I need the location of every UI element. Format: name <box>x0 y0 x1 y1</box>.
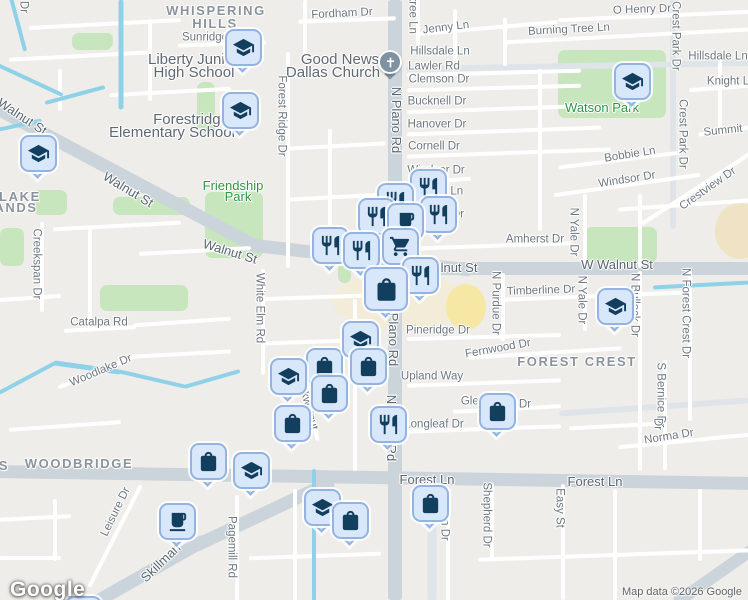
restaurant-icon <box>365 205 388 228</box>
restaurant-icon <box>427 203 450 226</box>
bag-marker[interactable] <box>364 267 408 321</box>
restaurant-icon <box>409 264 432 287</box>
school-icon <box>27 142 50 165</box>
restaurant-icon <box>319 234 342 257</box>
cafe-icon <box>166 510 189 533</box>
bag-marker-body <box>190 443 227 480</box>
cart-icon <box>389 235 412 258</box>
school-marker[interactable] <box>270 358 307 405</box>
church-marker[interactable] <box>378 50 402 78</box>
restaurant-icon <box>377 413 400 436</box>
bag-icon <box>339 509 362 532</box>
school-icon <box>232 36 255 59</box>
school-marker-body <box>597 288 634 325</box>
school-marker[interactable] <box>20 135 57 182</box>
school-marker[interactable] <box>597 288 634 335</box>
school-marker[interactable] <box>222 92 259 139</box>
bag-icon <box>373 276 400 303</box>
bag-marker-body <box>274 405 311 442</box>
bag-marker-body <box>479 393 516 430</box>
bag-marker-body <box>332 502 369 539</box>
bag-icon <box>357 355 380 378</box>
cafe-marker[interactable] <box>159 503 196 550</box>
restaurant-marker-body <box>370 406 407 443</box>
bag-icon <box>281 412 304 435</box>
school-icon <box>229 99 252 122</box>
school-marker-body <box>233 452 270 489</box>
bag-marker[interactable] <box>190 443 227 490</box>
restaurant-marker-body <box>343 232 380 269</box>
bag-marker[interactable] <box>332 502 369 549</box>
bag-marker-body <box>412 485 449 522</box>
school-marker-body <box>222 92 259 129</box>
school-marker-body <box>20 135 57 172</box>
restaurant-marker[interactable] <box>370 406 407 453</box>
map-marker-layer <box>0 0 748 600</box>
bag-marker[interactable] <box>479 393 516 440</box>
school-marker[interactable] <box>614 63 651 110</box>
bag-marker-body <box>350 348 387 385</box>
cross-icon <box>384 56 397 69</box>
restaurant-marker[interactable] <box>420 196 457 243</box>
school-marker[interactable] <box>233 452 270 499</box>
bag-marker[interactable] <box>274 405 311 452</box>
bag-marker-body <box>311 375 348 412</box>
bag-icon <box>419 492 442 515</box>
school-icon <box>604 295 627 318</box>
map-canvas[interactable]: WHISPERINGHILLSLAKEANDSWOODBRIDGEFOREST … <box>0 0 748 600</box>
school-icon <box>240 459 263 482</box>
bag-marker[interactable] <box>350 348 387 395</box>
bag-icon <box>197 450 220 473</box>
bag-marker-body <box>364 267 408 311</box>
school-marker-body <box>614 63 651 100</box>
google-logo[interactable]: Google <box>10 578 85 600</box>
bag-marker[interactable] <box>412 485 449 532</box>
bag-icon <box>318 382 341 405</box>
school-icon <box>621 70 644 93</box>
cafe-marker-body <box>159 503 196 540</box>
school-marker[interactable] <box>225 29 262 76</box>
church-circle <box>378 50 402 74</box>
school-icon <box>277 365 300 388</box>
restaurant-icon <box>350 239 373 262</box>
school-icon <box>311 496 334 519</box>
school-marker-body <box>270 358 307 395</box>
bag-marker[interactable] <box>311 375 348 422</box>
school-marker-body <box>225 29 262 66</box>
bag-icon <box>486 400 509 423</box>
restaurant-marker-body <box>420 196 457 233</box>
map-attribution: Map data ©2026 Google <box>622 586 742 598</box>
